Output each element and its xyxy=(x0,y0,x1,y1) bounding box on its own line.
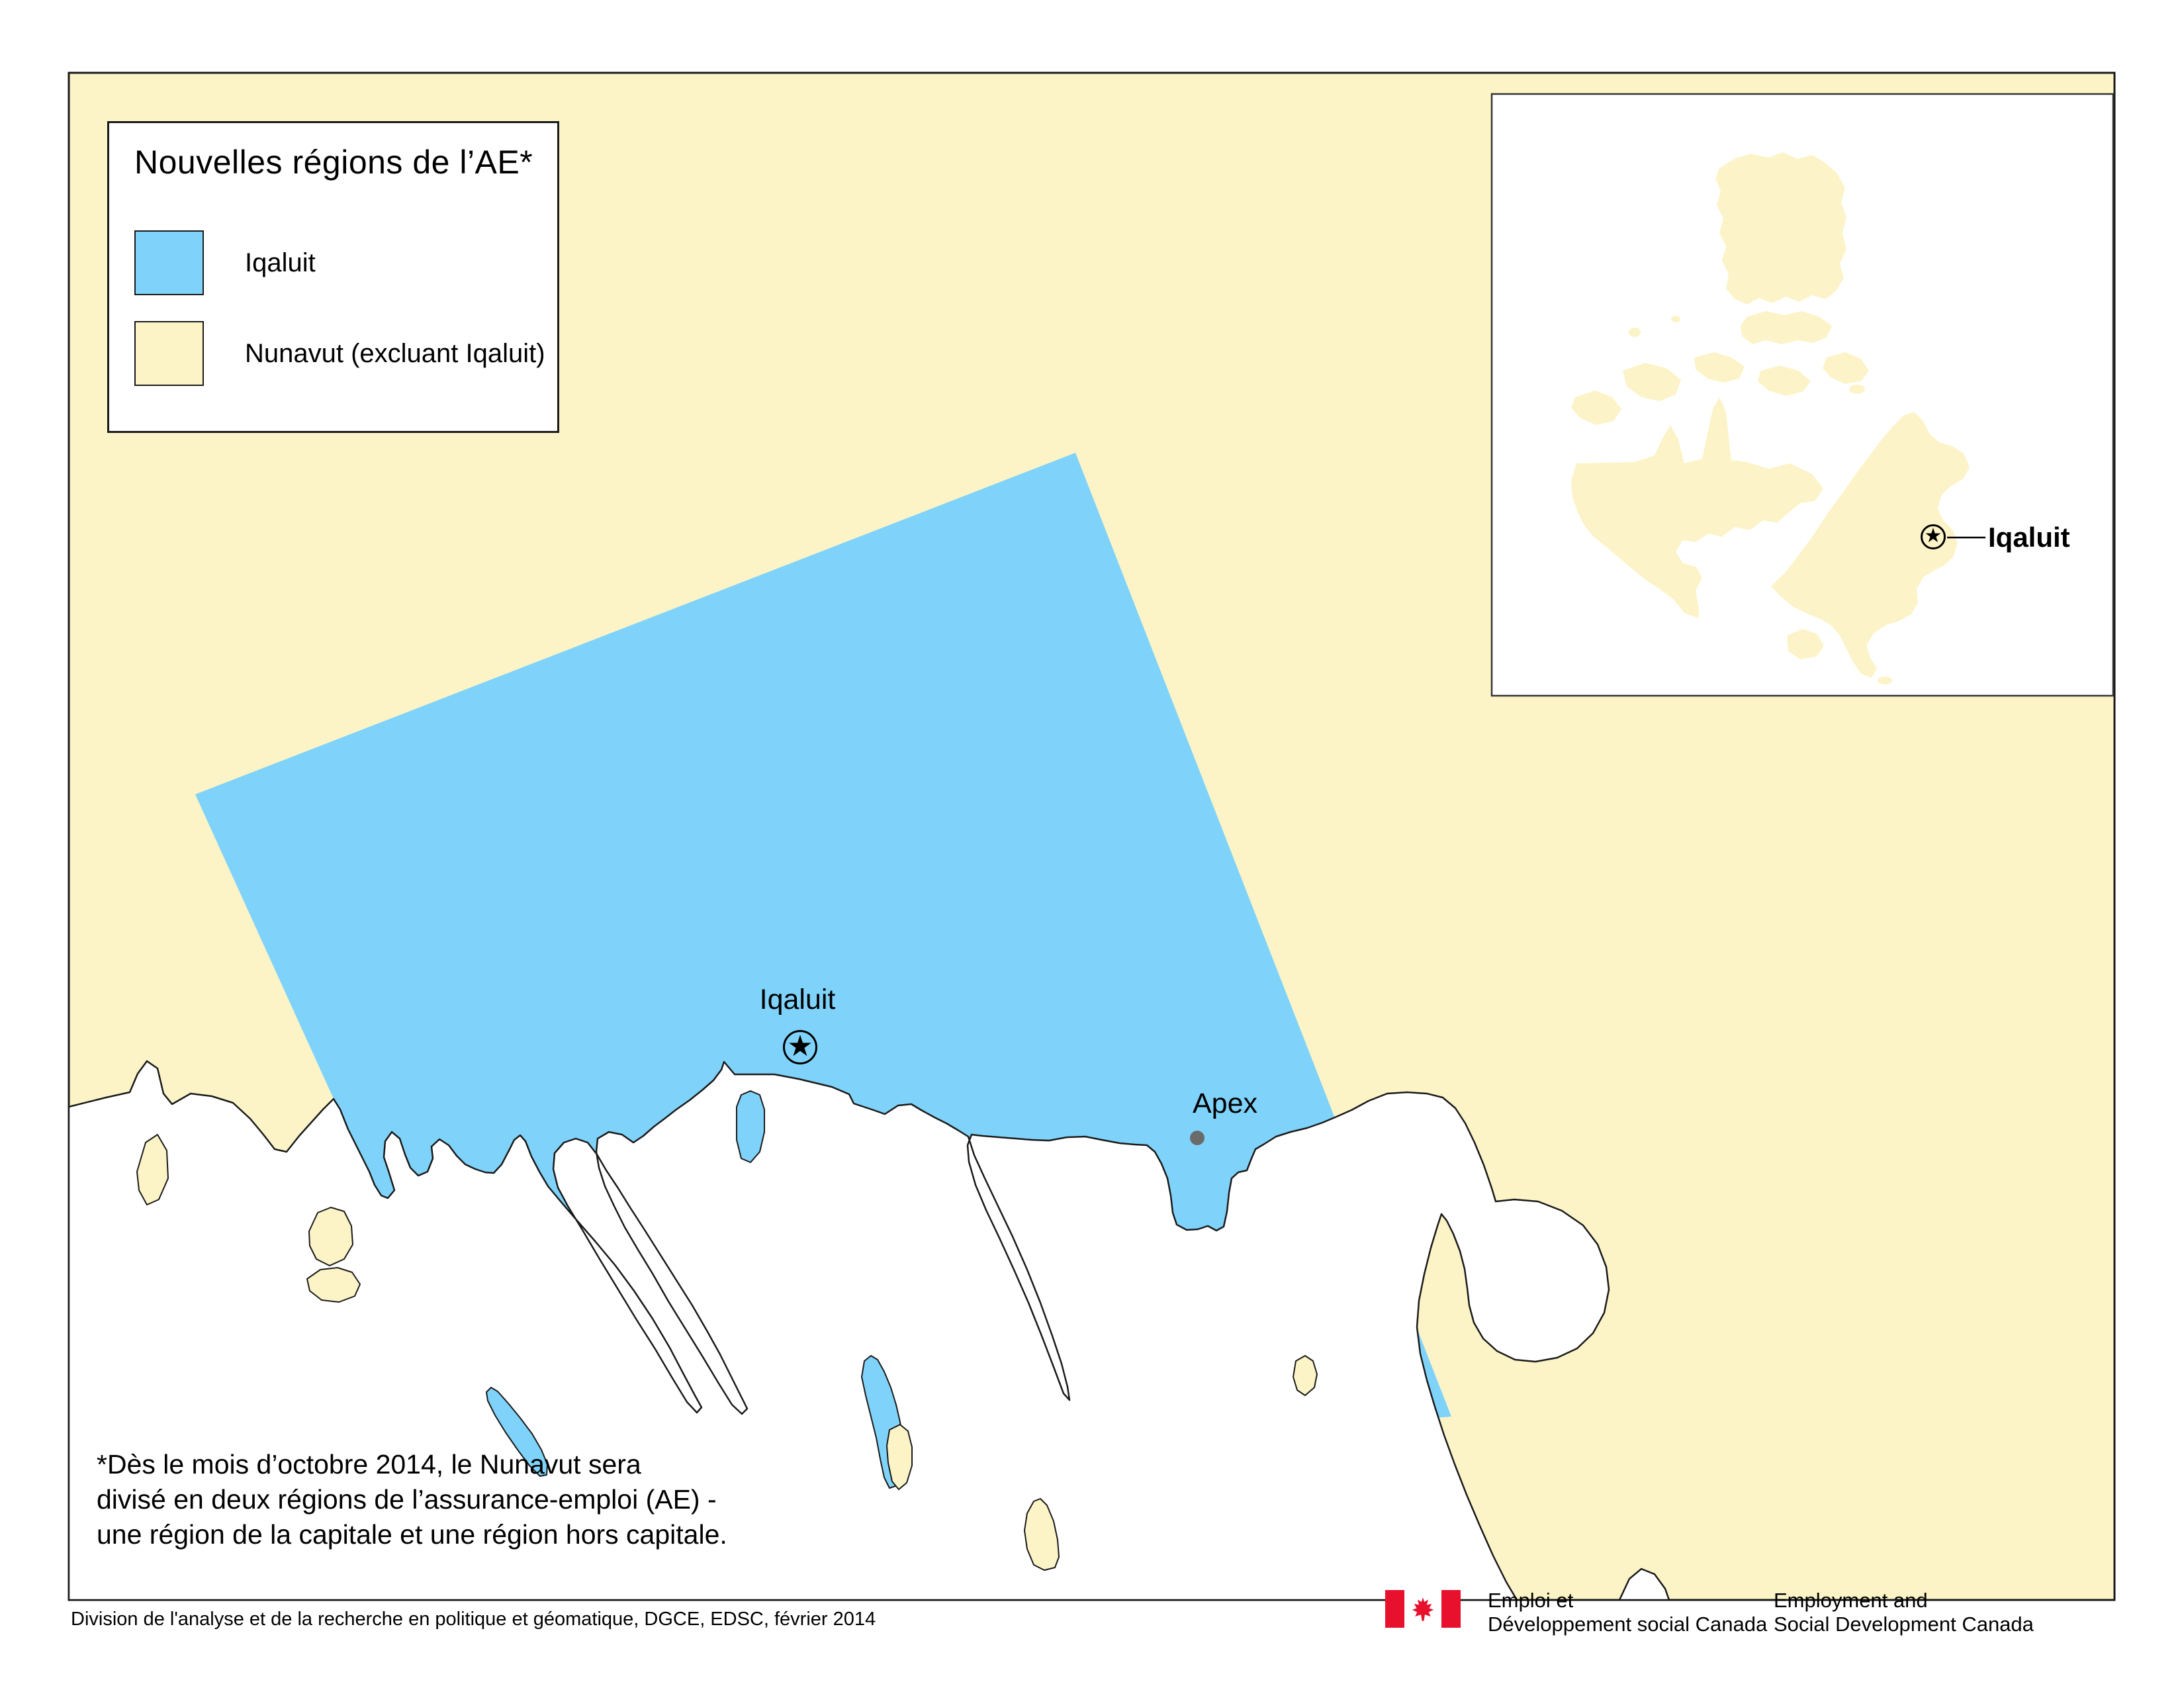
signature-fr-line: Emploi et xyxy=(1488,1589,1767,1613)
island-blue-bay xyxy=(737,1091,764,1162)
map-page: Nouvelles régions de l’AE* Iqaluit Nunav… xyxy=(0,0,2184,1688)
signature-fr-line: Développement social Canada xyxy=(1488,1613,1767,1636)
apex-town-label: Apex xyxy=(1193,1088,1257,1120)
legend: Nouvelles régions de l’AE* Iqaluit Nunav… xyxy=(107,121,559,433)
legend-swatch-nunavut xyxy=(134,321,204,386)
legend-swatch-iqaluit xyxy=(134,230,204,295)
legend-item-iqaluit: Iqaluit xyxy=(134,230,316,295)
flag-right-bar xyxy=(1441,1590,1461,1628)
legend-label-iqaluit: Iqaluit xyxy=(245,248,316,278)
signature-en-line: Employment and xyxy=(1774,1589,2034,1613)
flag-left-bar xyxy=(1385,1590,1404,1628)
apex-dot-marker xyxy=(1190,1131,1205,1145)
maple-leaf-icon xyxy=(1408,1595,1437,1624)
signature-english: Employment and Social Development Canada xyxy=(1774,1589,2034,1636)
footnote-line: *Dès le mois d’octobre 2014, le Nunavut … xyxy=(97,1447,727,1482)
signature-french: Emploi et Développement social Canada xyxy=(1488,1589,1767,1636)
signature-en-line: Social Development Canada xyxy=(1774,1613,2034,1636)
legend-title: Nouvelles régions de l’AE* xyxy=(134,143,533,181)
legend-label-nunavut: Nunavut (excluant Iqaluit) xyxy=(245,339,545,369)
iqaluit-city-label: Iqaluit xyxy=(760,984,836,1016)
legend-item-nunavut: Nunavut (excluant Iqaluit) xyxy=(134,321,545,386)
canada-flag-icon xyxy=(1385,1590,1461,1628)
footnote-line: divisé en deux régions de l’assurance-em… xyxy=(97,1482,727,1517)
attribution-text: Division de l'analyse et de la recherche… xyxy=(71,1609,876,1630)
iqaluit-star-marker: ★ xyxy=(783,1030,817,1064)
footnote-line: une région de la capitale et une région … xyxy=(97,1517,727,1552)
star-icon: ★ xyxy=(1925,526,1942,546)
star-icon: ★ xyxy=(787,1032,813,1061)
flag-centre xyxy=(1404,1590,1441,1628)
inset-star-marker: ★ xyxy=(1921,524,1946,549)
inset-city-label: Iqaluit xyxy=(1988,522,2070,553)
footnote: *Dès le mois d’octobre 2014, le Nunavut … xyxy=(97,1447,727,1552)
